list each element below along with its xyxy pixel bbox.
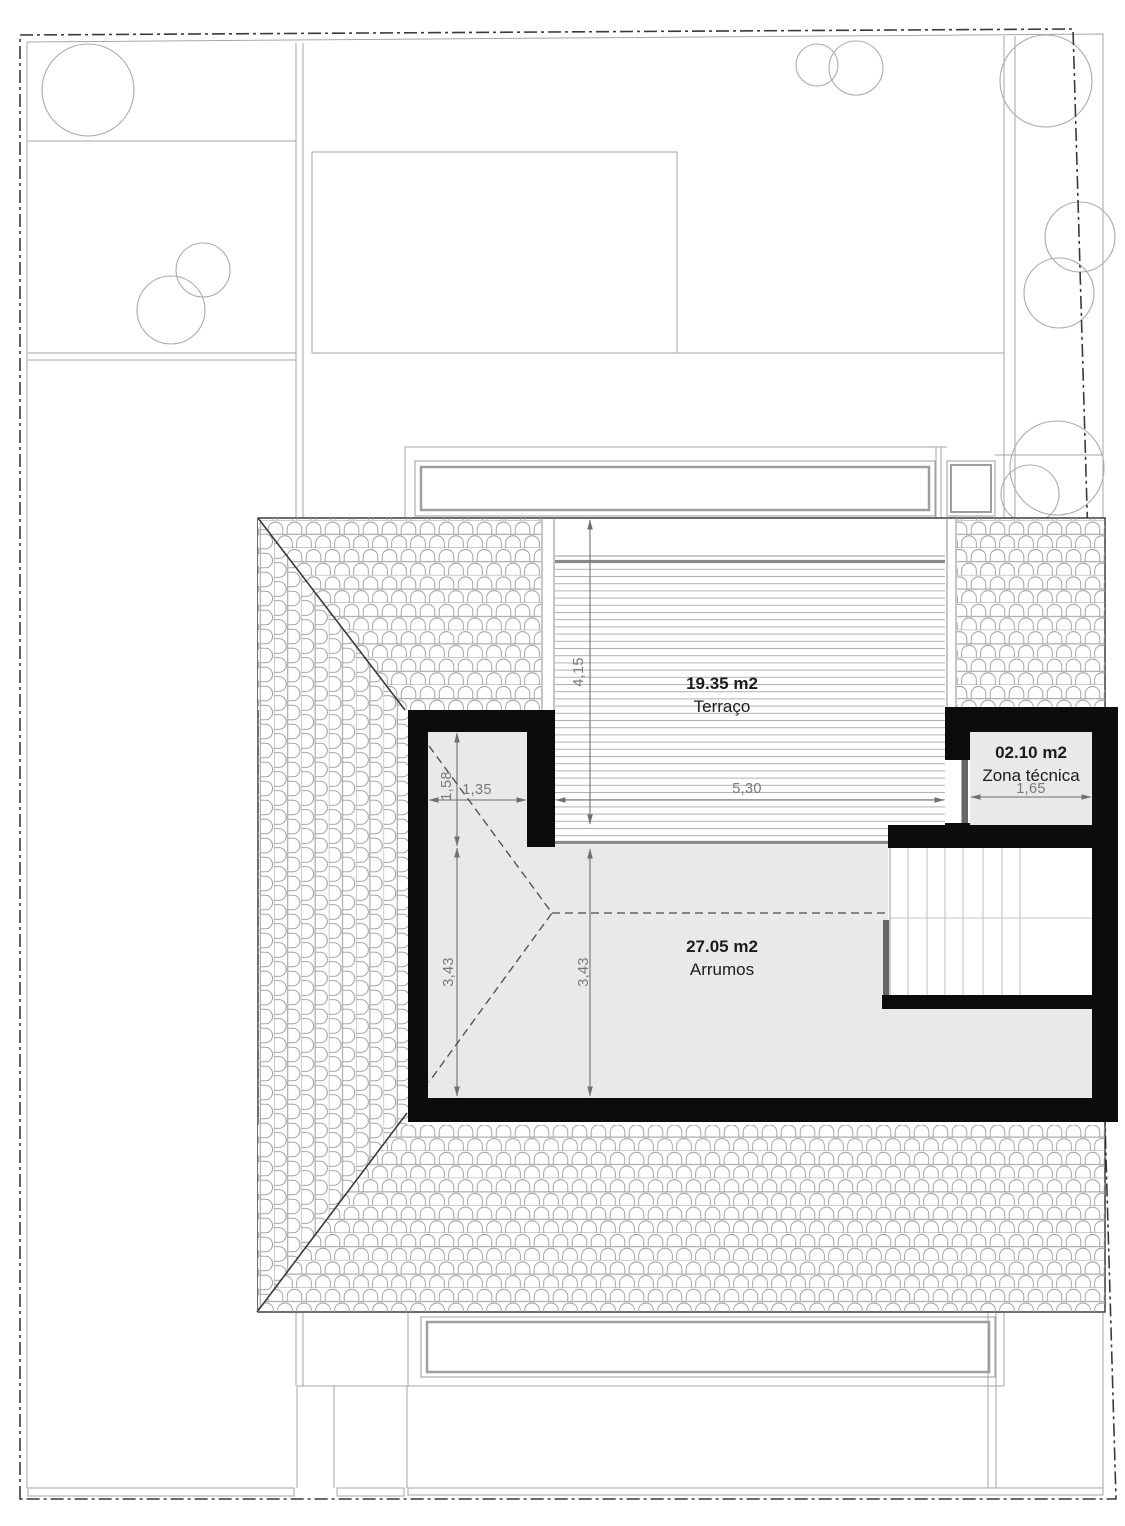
- roof-tiles-right-strip: [957, 518, 1105, 707]
- wall-left: [408, 710, 428, 1122]
- floor-plan-drawing: [0, 0, 1125, 1526]
- dim-terrace-width: 5,30: [732, 781, 761, 797]
- dim-storage-mid-height: 3,43: [576, 957, 592, 986]
- arrumos-floor-right: [888, 1009, 1092, 1098]
- wall-nook-right: [527, 732, 555, 847]
- tree-circles: [42, 35, 1115, 523]
- terrace-room-label: 19.35 m2 Terraço: [686, 672, 758, 718]
- dim-nook-width: 1,35: [462, 782, 491, 798]
- wall-right: [1092, 732, 1118, 1122]
- wall-nook-top: [408, 710, 555, 732]
- arrumos-room-label: 27.05 m2 Arrumos: [686, 935, 758, 981]
- zona-door-leaf: [962, 760, 969, 823]
- lower-floor-outline-bottom: [408, 1313, 1004, 1386]
- terrace-room-name: Terraço: [686, 695, 758, 718]
- wall-zona-top: [945, 707, 1118, 732]
- zona-area-value: 02.10 m2: [982, 741, 1079, 764]
- lower-floor-outline-top: [405, 447, 1103, 518]
- dim-terrace-height: 4,15: [571, 657, 587, 686]
- wall-stairs-bottom: [882, 995, 1092, 1009]
- wall-stairs-top: [888, 825, 1092, 848]
- roof-tiles-bottom: [258, 1125, 1105, 1312]
- staircase: [890, 848, 1092, 995]
- patio-area-outline: [312, 152, 677, 353]
- stair-door-leaf: [883, 920, 889, 995]
- bottom-curbs: [28, 1488, 1103, 1496]
- dim-nook-height: 1,58: [439, 771, 455, 800]
- arrumos-floor: [428, 845, 888, 1098]
- wall-zona-left-upper: [945, 732, 970, 760]
- arrumos-room-name: Arrumos: [686, 958, 758, 981]
- roof-plan-canvas: 19.35 m2 Terraço 02.10 m2 Zona técnica 2…: [0, 0, 1125, 1526]
- wall-bottom: [408, 1098, 1118, 1122]
- dim-technical-width: 1,65: [1016, 781, 1045, 797]
- roof-tiles-left-strip: [258, 710, 408, 1125]
- dim-storage-left-height: 3,43: [441, 957, 457, 986]
- arrumos-area-value: 27.05 m2: [686, 935, 758, 958]
- terrace-area-value: 19.35 m2: [686, 672, 758, 695]
